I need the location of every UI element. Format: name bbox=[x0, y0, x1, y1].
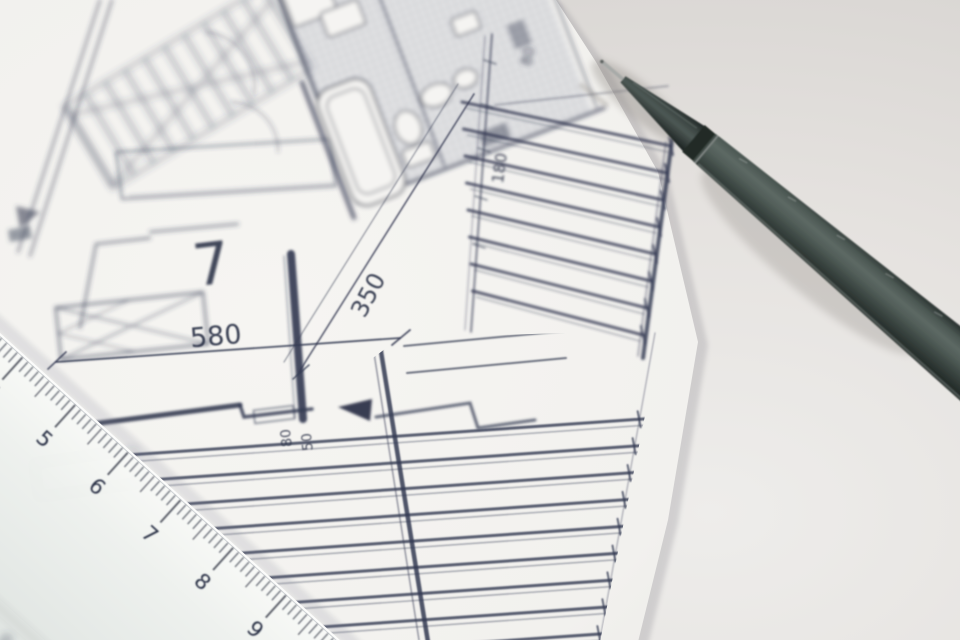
photo-architectural-plan: 80 180 7 580 bbox=[0, 0, 960, 640]
dim-80-label: 80 bbox=[278, 428, 296, 447]
dim-580-label: 580 bbox=[189, 319, 243, 354]
dim-50-label: 50 bbox=[299, 432, 317, 451]
photo-canvas: 80 180 7 580 bbox=[0, 0, 960, 640]
